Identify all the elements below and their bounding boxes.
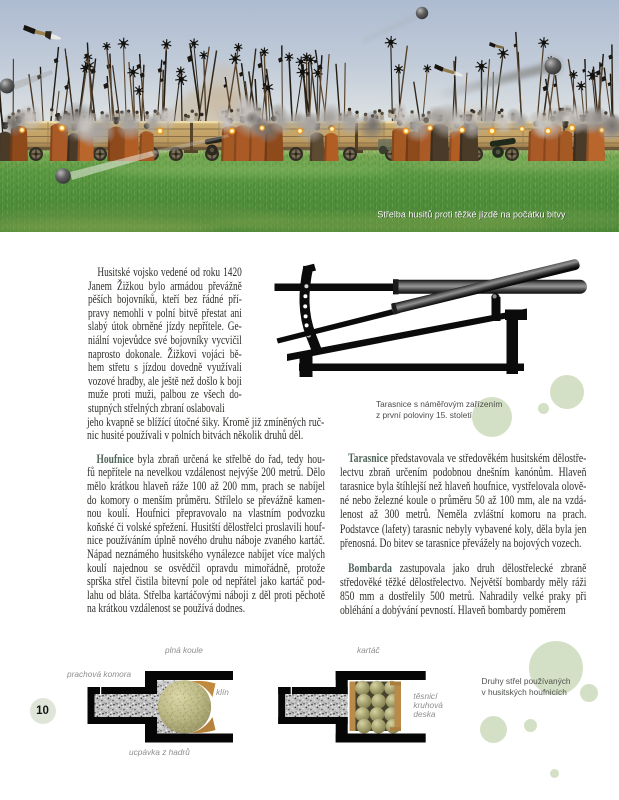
svg-text:Střelba husitů proti těžké jíz: Střelba husitů proti těžké jízdě na počá… — [377, 209, 566, 219]
